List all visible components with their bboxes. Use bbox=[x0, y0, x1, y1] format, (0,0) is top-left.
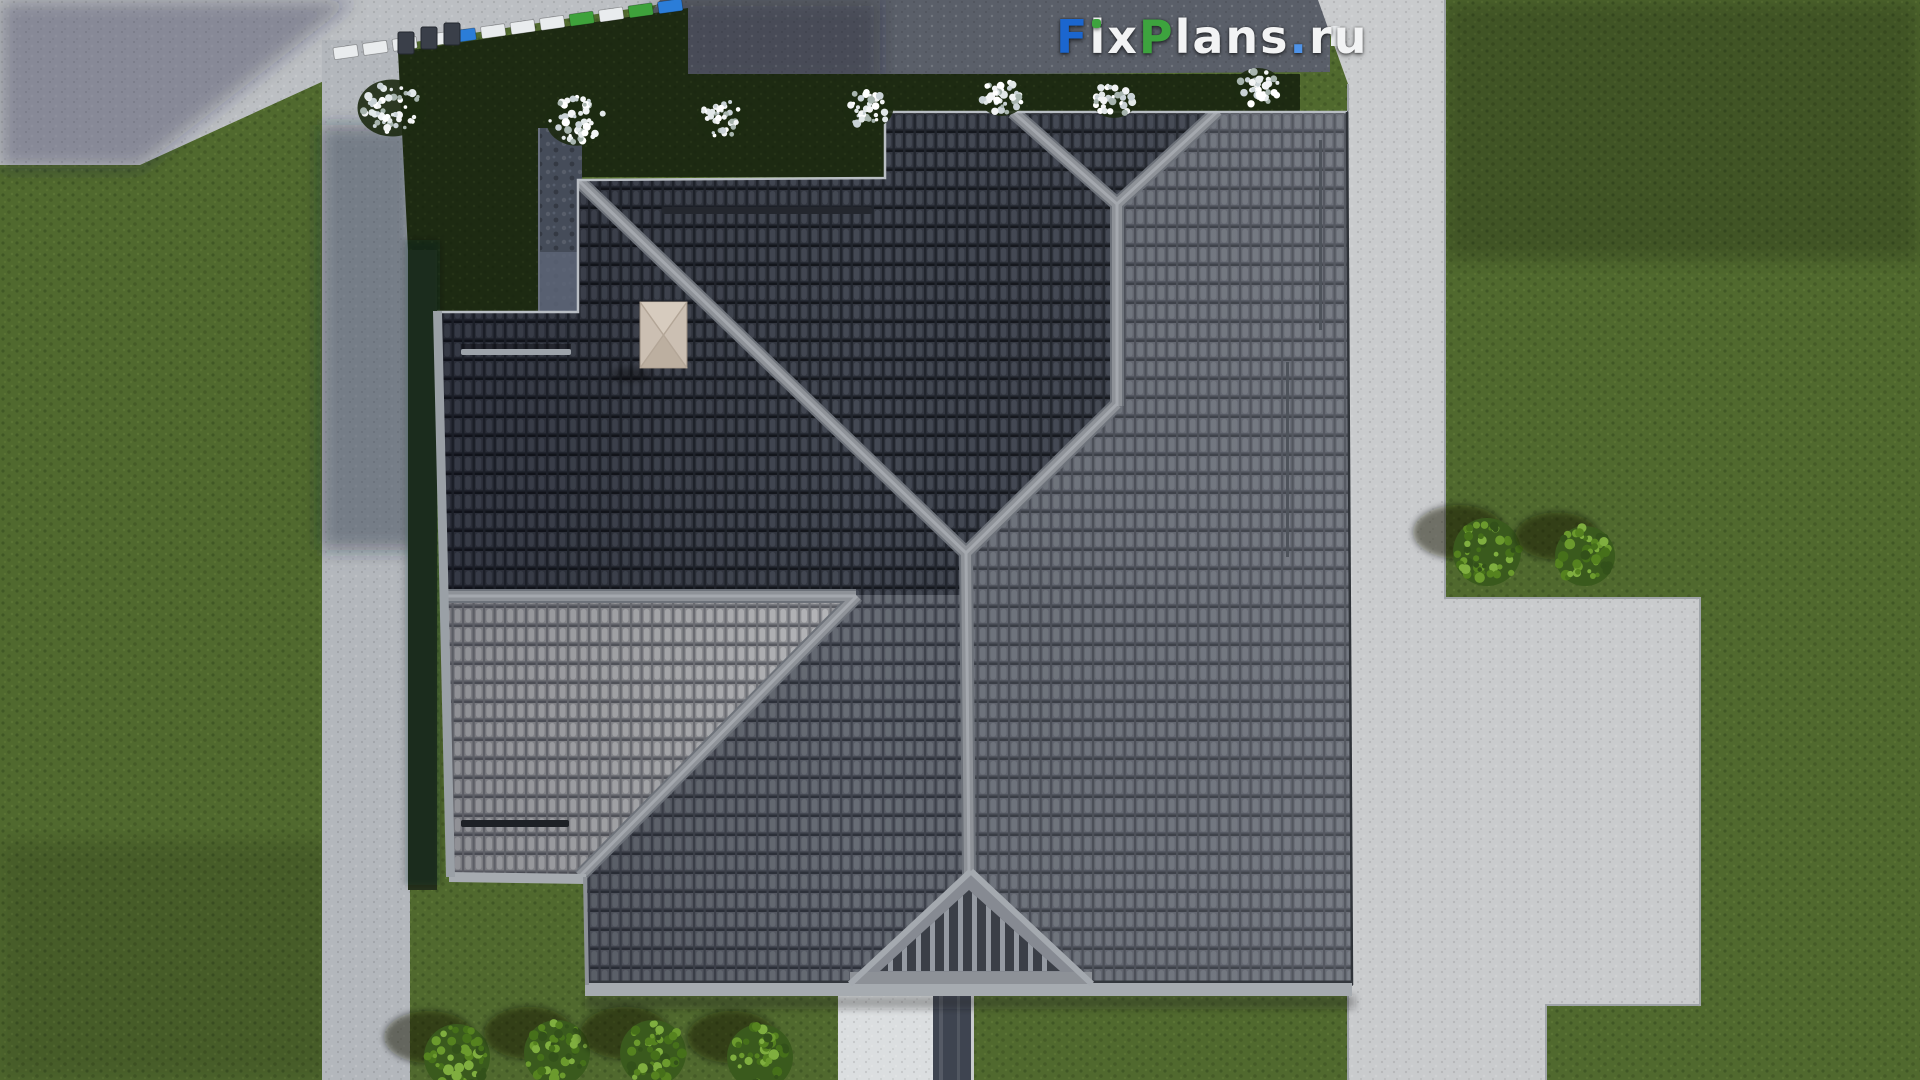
fascia-leftwing-bottom bbox=[449, 872, 586, 884]
snow-guard-sunlit bbox=[461, 820, 569, 827]
stone-path-edge bbox=[538, 128, 540, 312]
bin bbox=[398, 32, 414, 54]
watermark-letter: F bbox=[1056, 10, 1089, 64]
snow-guard-leftwing bbox=[461, 349, 571, 355]
white-shrub bbox=[979, 78, 1025, 116]
white-shrub bbox=[358, 80, 427, 137]
gable-soffit bbox=[850, 972, 1092, 984]
white-shrub bbox=[843, 87, 894, 129]
white-shrub bbox=[1234, 68, 1282, 108]
fascia-step bbox=[585, 877, 587, 985]
stone-path-lit bbox=[538, 252, 582, 312]
snow-guard-shadow bbox=[461, 344, 571, 349]
fascia-bottom bbox=[585, 983, 1352, 996]
white-shrub bbox=[1091, 80, 1137, 118]
watermark-letter: lans bbox=[1175, 10, 1290, 64]
fixplans-watermark: FixPlans.ru bbox=[1056, 10, 1368, 64]
watermark-letter: ru bbox=[1309, 10, 1368, 64]
scene-aerial-house-render: FixPlans.ru bbox=[0, 0, 1920, 1080]
render-canvas bbox=[0, 0, 1920, 1080]
roof-line-right-2 bbox=[1319, 140, 1322, 330]
watermark-i-dot bbox=[1092, 19, 1101, 28]
road-shadow bbox=[320, 125, 415, 550]
bin bbox=[421, 27, 437, 49]
chimney-shadow bbox=[611, 367, 651, 381]
watermark-letter: . bbox=[1290, 10, 1309, 64]
lawn-shade-bottomleft bbox=[0, 840, 340, 1080]
eave-ground-shadow bbox=[585, 995, 1355, 1009]
white-shrub bbox=[546, 94, 608, 145]
lawn-shade-topright bbox=[1445, 0, 1920, 260]
bin bbox=[444, 23, 460, 45]
snow-guard-top bbox=[662, 207, 872, 214]
white-shrub bbox=[697, 97, 748, 139]
roof-line-right-1 bbox=[1286, 362, 1289, 557]
watermark-letter: P bbox=[1139, 10, 1175, 64]
